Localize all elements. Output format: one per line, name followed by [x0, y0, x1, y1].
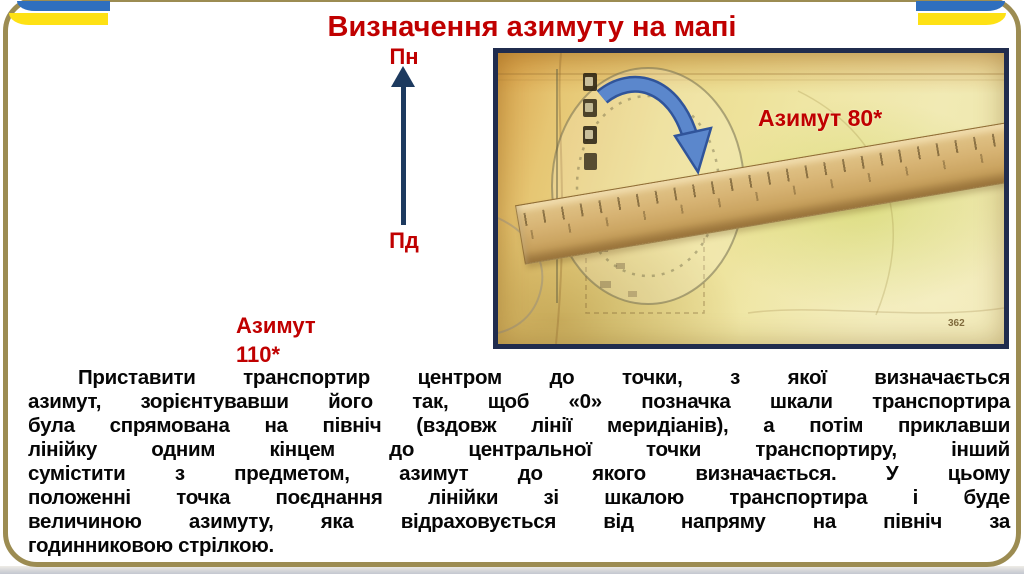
photo-caption: Азимут 80* [758, 105, 882, 132]
paragraph-line: сумістити з предметом, азимут до якого в… [28, 462, 1010, 486]
azimuth-note: Азимут 110* [236, 311, 316, 369]
bottom-strip [0, 566, 1024, 574]
slide-canvas: Визначення азимуту на мапі Пн Пд Азимут … [0, 0, 1024, 574]
map-mark: 362 [948, 318, 965, 329]
paragraph-line: Приставити транспортир центром до точки,… [28, 366, 1010, 390]
paragraph-line: положенні точка поєднання лінійки зі шка… [28, 486, 1010, 510]
curved-arrow-icon [498, 53, 1004, 344]
page-title: Визначення азимуту на мапі [10, 11, 1024, 44]
paragraph-line: була спрямована на північ (вздовж лінії … [28, 414, 1010, 438]
azimuth-note-label: Азимут [236, 311, 316, 340]
paragraph-line: величиною азимуту, яка відраховується ві… [28, 510, 1010, 534]
body-paragraph: Приставити транспортир центром до точки,… [28, 366, 1010, 558]
meridian-arrow-line [401, 84, 406, 225]
paragraph-line: азимут, зорієнтувавши його так, щоб «0» … [28, 390, 1010, 414]
paragraph-line: лінійку одним кінцем до центральної точк… [28, 438, 1010, 462]
paragraph-line: годинниковою стрілкою. [28, 534, 1010, 558]
flag-ribbon-right-blue [916, 1, 1005, 11]
map-photo: Азимут 80* 362 [493, 48, 1009, 349]
azimuth-note-value: 110* [236, 340, 316, 369]
flag-ribbon-left-blue [17, 1, 110, 11]
south-label: Пд [378, 228, 430, 254]
